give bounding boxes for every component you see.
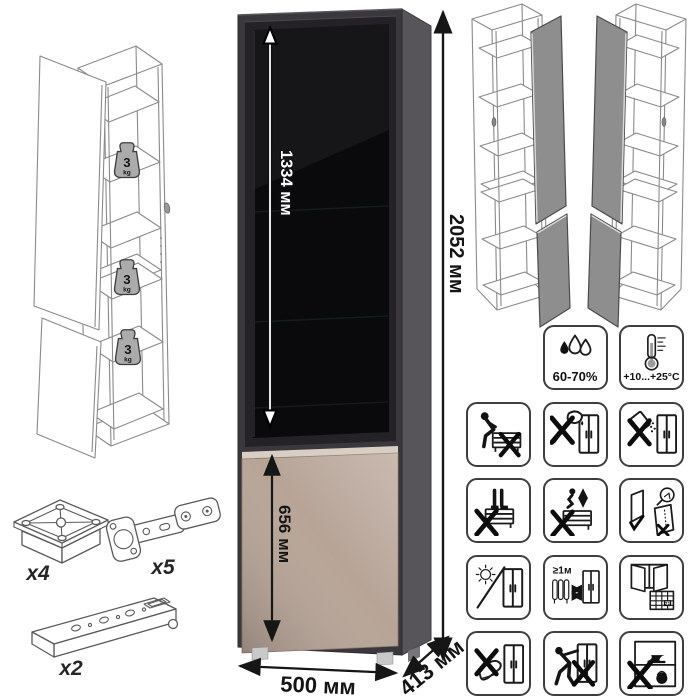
svg-text:2052 мм: 2052 мм bbox=[445, 214, 467, 294]
grid-spacer bbox=[466, 325, 531, 390]
temperature-icon: +10...+25°C bbox=[619, 325, 684, 390]
heater-distance-icon: ≥1м bbox=[543, 555, 608, 620]
svg-text:656 мм: 656 мм bbox=[275, 505, 294, 563]
no-heavy-load-icon bbox=[619, 631, 684, 696]
width-dimension: 500 мм bbox=[240, 666, 396, 700]
ventilation-icon: 21 bbox=[619, 555, 684, 620]
open-door-lower bbox=[37, 318, 101, 458]
no-direct-sunlight-icon bbox=[466, 555, 531, 620]
mounting-rail-qty: x2 bbox=[58, 657, 83, 680]
open-door-upper bbox=[34, 56, 106, 330]
cabinet-side-panel bbox=[402, 9, 431, 655]
care-icons-grid: 60-70% +10...+25°C bbox=[466, 325, 684, 696]
no-standing-icon bbox=[466, 478, 531, 543]
no-kicking-icon bbox=[466, 631, 531, 696]
no-jumping-icon bbox=[543, 478, 608, 543]
product-sheet: 3 kg 3 kg 3 kg x4 bbox=[0, 0, 689, 700]
svg-text:kg: kg bbox=[124, 356, 132, 363]
humidity-range-label: 60-70% bbox=[553, 370, 598, 383]
foot-glide-qty: x4 bbox=[25, 562, 50, 585]
svg-text:kg: kg bbox=[123, 286, 131, 293]
calendar-day-label: 21 bbox=[664, 601, 670, 607]
cabinet-foot bbox=[377, 652, 393, 665]
hardware-mounting-rail bbox=[32, 598, 178, 657]
shelf-load-unit: kg bbox=[123, 169, 131, 176]
no-spilling-icon bbox=[619, 402, 684, 467]
humidity-icon: 60-70% bbox=[543, 325, 608, 390]
hardware-foot-glide bbox=[14, 500, 108, 563]
no-sharp-tools-icon bbox=[543, 402, 608, 467]
heater-distance-label: ≥1м bbox=[553, 566, 572, 577]
svg-text:3: 3 bbox=[124, 342, 131, 357]
no-pushing-icon bbox=[543, 631, 608, 696]
hinge-qty: x5 bbox=[150, 556, 175, 579]
door-orientation-right bbox=[588, 4, 686, 327]
svg-text:3: 3 bbox=[123, 272, 130, 287]
carcass-wireframe: 3 kg 3 kg 3 kg bbox=[34, 46, 171, 458]
hardware-hinge bbox=[105, 495, 226, 563]
door-adjustment-icon bbox=[619, 478, 684, 543]
svg-text:500 мм: 500 мм bbox=[280, 671, 356, 699]
door-orientation-left bbox=[472, 4, 570, 327]
total-height-dimension: 2052 мм bbox=[443, 12, 467, 659]
temperature-range-label: +10...+25°C bbox=[623, 372, 679, 383]
cabinet-foot bbox=[252, 647, 268, 660]
main-cabinet-render bbox=[238, 9, 431, 665]
svg-text:1334 мм: 1334 мм bbox=[277, 150, 295, 216]
shelf-load-value: 3 bbox=[123, 155, 130, 170]
no-sitting-icon bbox=[466, 402, 531, 467]
